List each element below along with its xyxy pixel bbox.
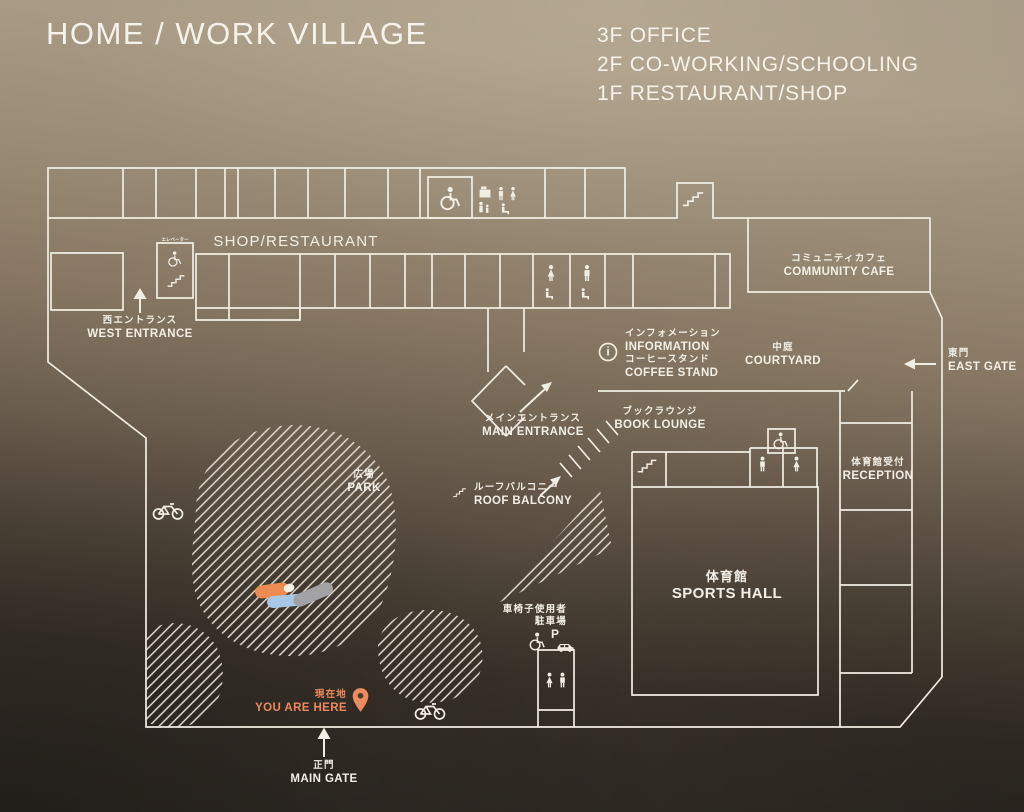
label-reception: 体育館受付 RECEPTION [843,457,914,483]
park-area [192,425,396,656]
label-park: 広場 PARK [347,469,380,495]
floor-legend-line: 3F OFFICE [597,21,919,50]
map-sign: HOME / WORK VILLAGE 3F OFFICE 2F CO-WORK… [0,0,1024,812]
restroom-woman-icon [546,673,552,688]
label-east-gate: 東門 EAST GATE [948,348,1017,374]
roof-balcony-stairs-icon [453,489,466,497]
floor-plan-svg [0,0,1024,812]
label-main-entrance: メインエントランス MAIN ENTRANCE [482,413,584,439]
restroom-woman-icon [548,265,555,281]
restroom-woman-icon [510,187,516,200]
stairs-icon [638,460,657,471]
label-information-coffee: インフォメーション INFORMATION コーヒースタンド COFFEE ST… [625,328,721,381]
bench-seat-icon [546,288,553,299]
sign-title: HOME / WORK VILLAGE [46,16,428,52]
information-icon: i [606,345,609,359]
escalator-stairs-icon [168,276,185,286]
label-book-lounge: ブックラウンジ BOOK LOUNGE [614,406,705,432]
label-shop-restaurant: SHOP/RESTAURANT [213,232,378,252]
south-green-area [378,610,483,703]
main-entrance-arrow-icon [520,382,552,412]
restroom-man-icon [584,265,589,281]
west-entrance-arrow-icon [134,288,147,313]
restroom-woman-icon [793,457,799,472]
bench-seat-icon [582,288,589,299]
main-gate-arrow-icon [318,728,331,758]
baby-care-icon [480,187,491,198]
label-courtyard: 中庭 COURTYARD [745,342,821,368]
bicycle-icon [416,704,445,719]
restroom-man-icon [560,673,565,688]
label-sports-hall: 体育館 SPORTS HALL [672,569,782,604]
floor-legend: 3F OFFICE 2F CO-WORKING/SCHOOLING 1F RES… [597,21,919,108]
stairs-icon [683,193,703,205]
label-roof-balcony: ルーフバルコニー ROOF BALCONY [474,482,572,508]
wheelchair-icon [530,633,544,650]
parent-child-icon [479,202,488,213]
wheelchair-icon [169,251,181,266]
label-community-cafe: コミュニティカフェ COMMUNITY CAFE [784,253,895,279]
label-accessible-parking: 車椅子使用者 駐車場 [503,604,567,628]
east-gate-arrow-icon [904,359,936,370]
wheelchair-icon [441,187,459,209]
label-elevator: エレベーター [162,237,189,243]
bench-seat-icon [502,203,509,214]
floor-legend-line: 2F CO-WORKING/SCHOOLING [597,50,919,79]
restroom-man-icon [499,187,503,200]
parking-p-icon: P [551,627,559,641]
map-pin-icon [353,688,369,712]
southwest-green-area [146,623,223,727]
label-you-are-here: 現在地 YOU ARE HERE [255,689,347,715]
wheelchair-icon [774,433,787,449]
restroom-man-icon [760,457,765,472]
bicycle-icon [154,504,183,519]
floor-legend-line: 1F RESTAURANT/SHOP [597,79,919,108]
label-west-entrance: 西エントランス WEST ENTRANCE [87,315,193,341]
label-main-gate: 正門 MAIN GATE [290,760,357,786]
